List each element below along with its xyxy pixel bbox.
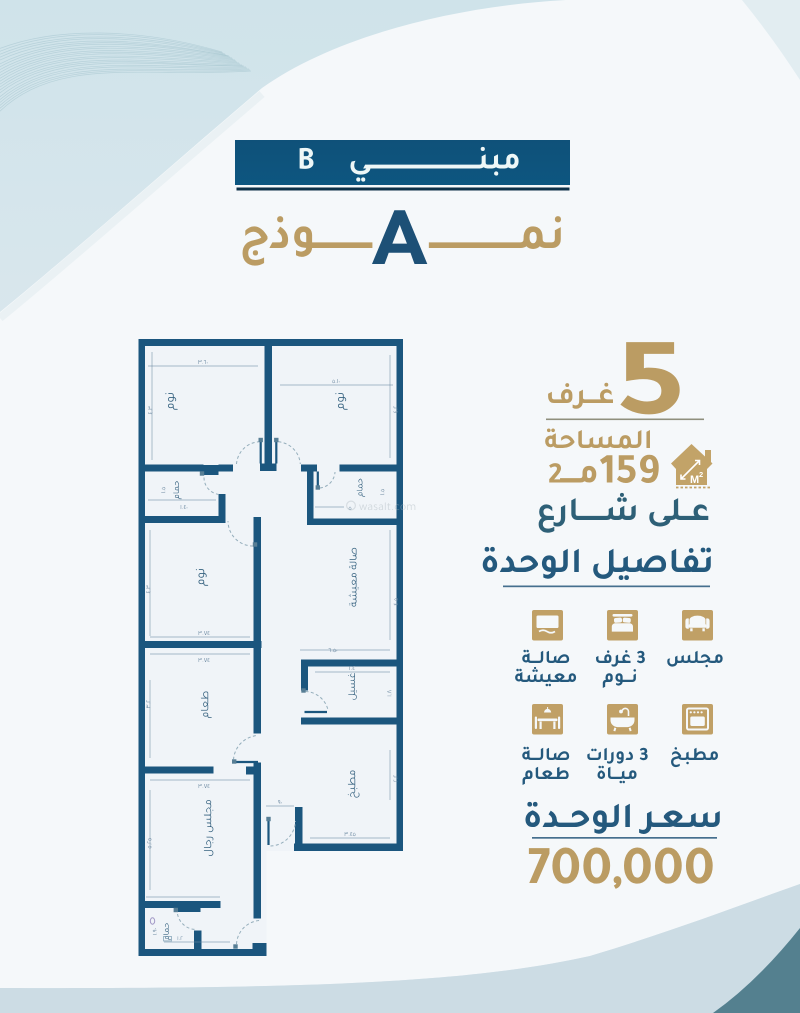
svg-text:2: 2	[699, 470, 703, 479]
svg-text:M: M	[690, 474, 699, 486]
